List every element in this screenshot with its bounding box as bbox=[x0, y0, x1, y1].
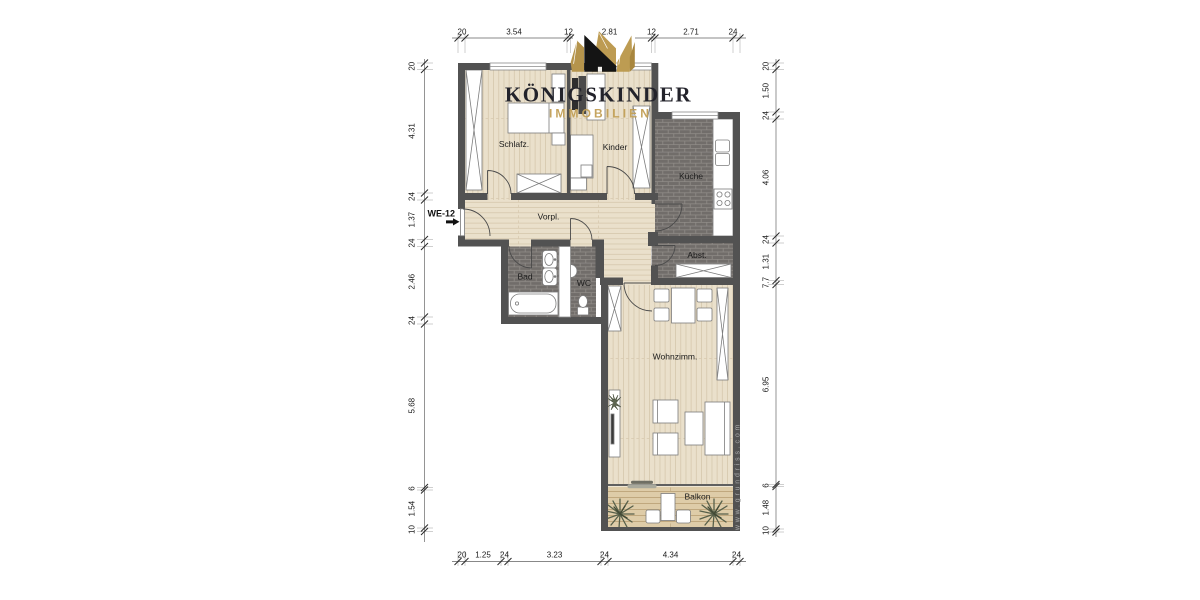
svg-text:KÖNIGSKINDER: KÖNIGSKINDER bbox=[505, 83, 692, 107]
svg-text:WE-12: WE-12 bbox=[427, 209, 455, 219]
svg-text:24: 24 bbox=[762, 235, 771, 244]
svg-text:24: 24 bbox=[600, 551, 609, 560]
svg-text:1.54: 1.54 bbox=[408, 500, 417, 516]
svg-text:Bad: Bad bbox=[517, 272, 532, 282]
svg-text:20: 20 bbox=[762, 61, 771, 70]
svg-text:2.46: 2.46 bbox=[408, 273, 417, 289]
svg-text:2.81: 2.81 bbox=[602, 28, 618, 37]
svg-text:Wohnzimm.: Wohnzimm. bbox=[653, 352, 698, 362]
svg-text:4.31: 4.31 bbox=[408, 123, 417, 139]
svg-text:Kinder: Kinder bbox=[603, 142, 628, 152]
svg-text:20: 20 bbox=[408, 61, 417, 70]
svg-text:1.37: 1.37 bbox=[408, 211, 417, 227]
svg-text:24: 24 bbox=[408, 238, 417, 247]
svg-text:7.7: 7.7 bbox=[762, 276, 771, 288]
svg-text:IMMOBILIEN: IMMOBILIEN bbox=[549, 107, 652, 121]
svg-text:Abst.: Abst. bbox=[687, 250, 706, 260]
svg-text:24: 24 bbox=[500, 551, 509, 560]
svg-text:12: 12 bbox=[564, 28, 573, 37]
svg-text:6: 6 bbox=[408, 486, 417, 491]
svg-text:4.34: 4.34 bbox=[663, 551, 679, 560]
svg-text:24: 24 bbox=[762, 111, 771, 120]
svg-text:Vorpl.: Vorpl. bbox=[538, 212, 560, 222]
svg-text:1.48: 1.48 bbox=[762, 499, 771, 515]
svg-text:Balkon: Balkon bbox=[685, 492, 711, 502]
svg-text:2.71: 2.71 bbox=[683, 28, 699, 37]
svg-text:Küche: Küche bbox=[679, 171, 703, 181]
svg-text:3.23: 3.23 bbox=[547, 551, 563, 560]
svg-text:10: 10 bbox=[408, 525, 417, 534]
svg-text:24: 24 bbox=[408, 316, 417, 325]
svg-text:6: 6 bbox=[762, 483, 771, 488]
svg-text:20: 20 bbox=[458, 28, 467, 37]
svg-text:6.95: 6.95 bbox=[762, 376, 771, 392]
svg-text:3.54: 3.54 bbox=[506, 28, 522, 37]
svg-text:24: 24 bbox=[408, 192, 417, 201]
svg-text:Schlafz.: Schlafz. bbox=[499, 139, 529, 149]
svg-text:4.06: 4.06 bbox=[762, 169, 771, 185]
svg-text:5.68: 5.68 bbox=[408, 397, 417, 413]
svg-text:WC: WC bbox=[577, 278, 591, 288]
svg-text:12: 12 bbox=[647, 28, 656, 37]
svg-text:www.grundriss.com: www.grundriss.com bbox=[735, 422, 742, 531]
svg-text:10: 10 bbox=[762, 526, 771, 535]
svg-text:1.50: 1.50 bbox=[762, 82, 771, 98]
svg-text:1.25: 1.25 bbox=[475, 551, 491, 560]
svg-text:24: 24 bbox=[729, 28, 738, 37]
svg-text:24: 24 bbox=[732, 551, 741, 560]
svg-text:20: 20 bbox=[458, 551, 467, 560]
svg-text:1.31: 1.31 bbox=[762, 253, 771, 269]
